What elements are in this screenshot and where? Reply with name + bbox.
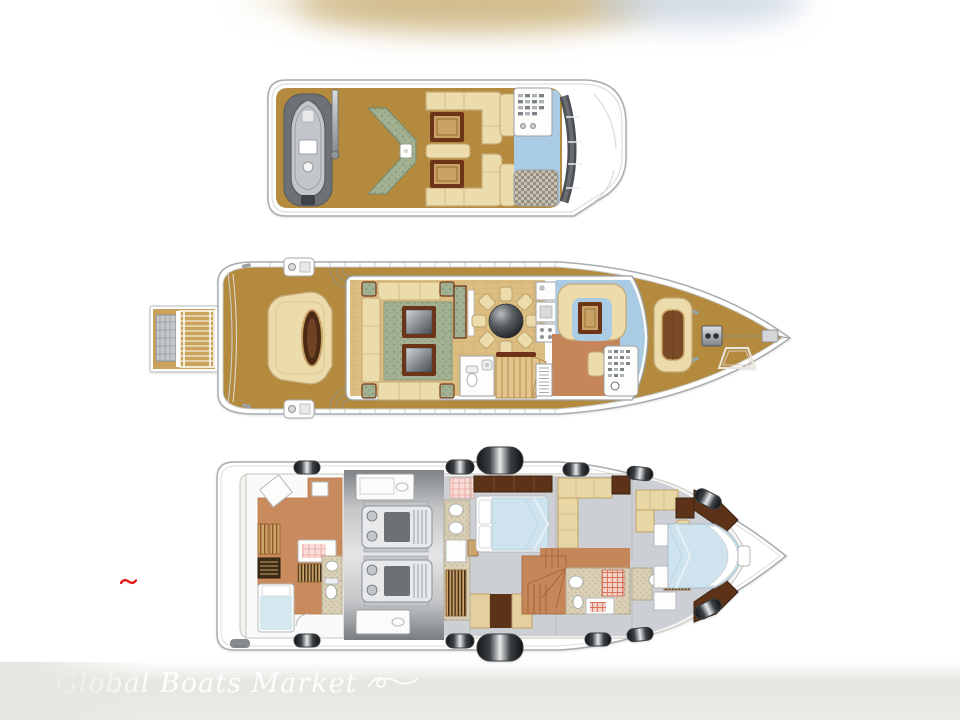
engine-port (362, 502, 432, 552)
sink (569, 576, 583, 588)
appliance-column (536, 282, 556, 342)
toilet (573, 596, 583, 609)
porthole-large (477, 634, 523, 661)
master-berth (476, 496, 548, 552)
woven-sun-pad (514, 170, 558, 206)
coffee-table (402, 306, 436, 338)
swim-platform (150, 306, 218, 372)
engine-room (344, 470, 444, 640)
pillow (479, 526, 491, 548)
sofa-bottom-bench (378, 382, 440, 400)
sofa-left-bench (362, 298, 380, 382)
pillow (479, 500, 491, 524)
watermark-swirl-icon (367, 674, 419, 694)
tender-outboard (301, 195, 315, 205)
master-ensuite (444, 500, 470, 620)
foredeck-sun-pad (654, 298, 692, 372)
salon (362, 282, 454, 400)
sink (326, 561, 338, 571)
sofa-back (636, 490, 678, 510)
flybridge-deck-plan (258, 70, 638, 224)
flybridge-helm-console (514, 88, 552, 136)
red-annotation-mark (120, 573, 137, 591)
crew-locker (258, 558, 280, 578)
stern-thruster (230, 639, 250, 648)
toilet-compartment (446, 540, 466, 562)
tank-aft (356, 610, 410, 634)
dinette-middle-bench (426, 144, 470, 158)
helm-seat (588, 352, 604, 376)
crew-single-berth (258, 584, 294, 632)
crew-bathroom (322, 556, 342, 614)
engine-starboard (362, 556, 432, 606)
launch-crane (331, 90, 339, 159)
sofa-seat (558, 498, 578, 548)
screenshot-canvas: Global Boats Market (0, 0, 960, 720)
helm-station (604, 346, 638, 396)
bow-vanity (738, 546, 750, 566)
cabinet (612, 476, 630, 494)
top-blur-smudge (245, 0, 675, 18)
nightstand (654, 524, 668, 546)
main-deck-plan (144, 248, 800, 426)
top-blur-smudge-tan (295, 0, 645, 32)
sink (449, 522, 463, 534)
sofa-seat (636, 510, 654, 532)
crew-bunk (270, 524, 280, 554)
sofa-top-bench (378, 282, 440, 300)
crew-cabin (246, 474, 344, 638)
mooring-winch-starboard (284, 400, 314, 418)
red-rug (602, 570, 624, 596)
desk (676, 498, 694, 518)
tender-console (299, 140, 317, 154)
anchor-windlass (702, 326, 722, 346)
tender-on-cradle (284, 94, 332, 206)
boarding-ladder (180, 311, 214, 367)
toilet (326, 585, 337, 599)
dresser (654, 592, 676, 610)
galley-counter-panel (536, 364, 552, 396)
watermark-left-fade (0, 662, 150, 720)
sofa-back (558, 478, 612, 498)
day-head (460, 356, 494, 396)
pilothouse-settee (558, 284, 626, 341)
guest-bathroom (566, 568, 630, 614)
wardrobe (474, 476, 552, 492)
aft-deck-lounge (268, 292, 332, 384)
nightstand (654, 566, 668, 588)
crew-bunk (258, 524, 268, 554)
mooring-winch-port (284, 258, 314, 276)
crew-shelf (312, 482, 328, 496)
tender-bow-seat (302, 110, 314, 122)
forward-dinette (426, 92, 502, 144)
shower-grate (446, 570, 466, 616)
sink (449, 504, 463, 516)
sideboard (454, 286, 466, 338)
coffee-table (402, 344, 436, 376)
crew-appliance (298, 564, 322, 582)
credenza (468, 290, 474, 336)
stair-rail (496, 352, 536, 357)
top-blur-smudge-blue (590, 0, 805, 26)
toilet (467, 374, 477, 387)
tank-forward (356, 474, 414, 500)
round-dining-table (489, 304, 523, 338)
tender-seat (303, 162, 313, 172)
lower-deck-plan (208, 440, 804, 666)
porthole-large (477, 447, 523, 474)
